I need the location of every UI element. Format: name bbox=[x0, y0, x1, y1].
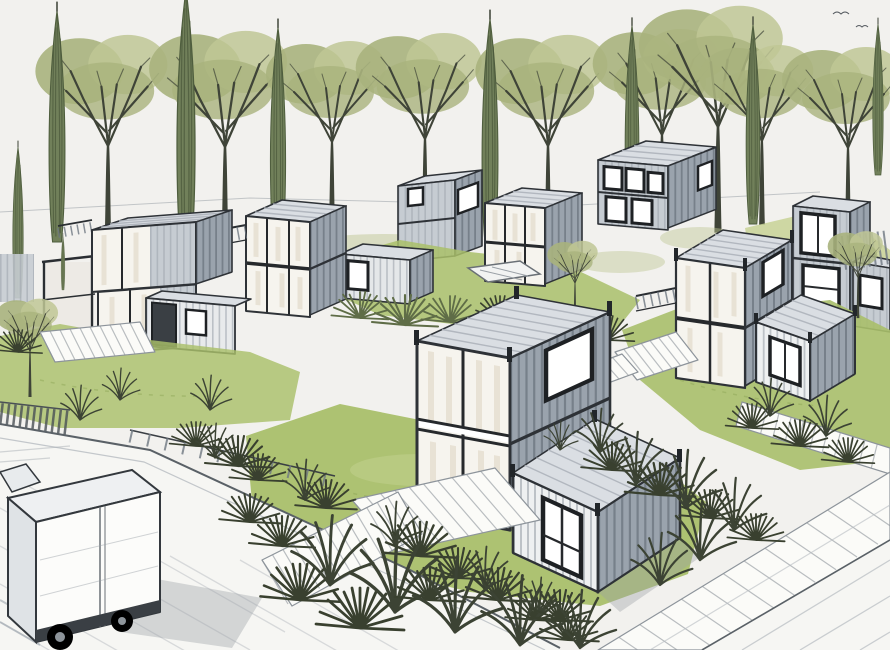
window bbox=[698, 161, 712, 190]
sketch-canvas bbox=[0, 0, 890, 650]
window bbox=[606, 197, 626, 223]
window bbox=[604, 167, 622, 191]
window bbox=[408, 187, 423, 206]
edge-container bbox=[0, 254, 34, 302]
window bbox=[626, 168, 644, 192]
truck-side bbox=[8, 498, 36, 642]
container-community-illustration bbox=[0, 0, 890, 650]
window bbox=[648, 172, 663, 193]
door bbox=[152, 303, 176, 347]
window bbox=[186, 310, 206, 336]
window bbox=[348, 261, 368, 291]
window bbox=[632, 199, 652, 225]
house-small-center bbox=[340, 244, 433, 304]
window bbox=[860, 275, 882, 309]
house-back-right bbox=[598, 141, 716, 230]
